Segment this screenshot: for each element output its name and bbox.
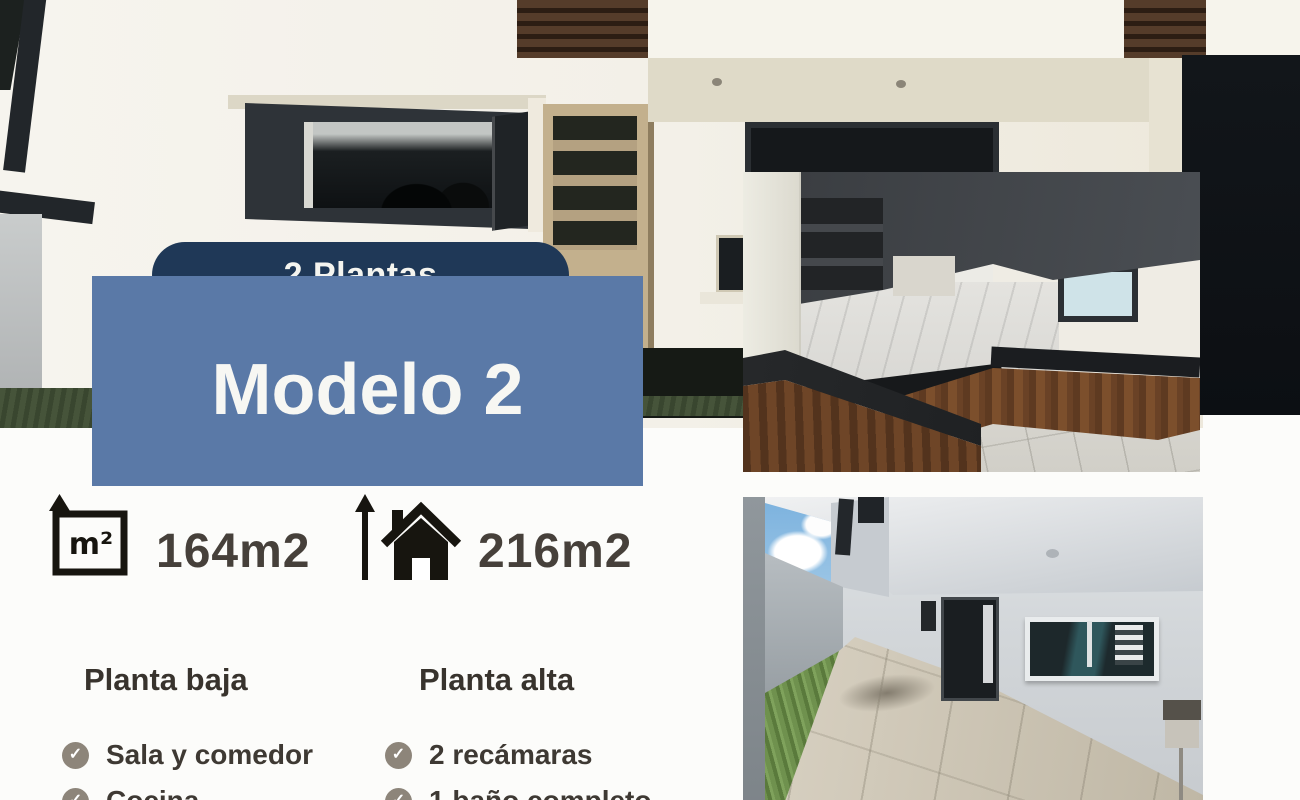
patio-near-wall xyxy=(743,497,765,800)
ceiling-light xyxy=(712,78,722,86)
kitchen-hood-gap xyxy=(893,256,955,296)
patio-door-interior xyxy=(983,605,993,683)
kitchen-open-shelves xyxy=(801,198,883,290)
wood-slat-canopy-right xyxy=(1124,0,1206,58)
check-icon: ✓ xyxy=(62,788,89,800)
built-area-value: 216m2 xyxy=(478,524,632,579)
check-icon: ✓ xyxy=(385,742,412,769)
list-item-upper-1: ✓ 2 recámaras xyxy=(385,739,592,771)
window-sill xyxy=(700,292,746,304)
model-title: Modelo 2 xyxy=(211,349,523,431)
upper-floor-window xyxy=(858,497,884,523)
ceiling-light xyxy=(896,80,906,88)
patio-window-divider xyxy=(1087,621,1092,667)
check-icon: ✓ xyxy=(62,742,89,769)
washbasin-top xyxy=(1163,700,1201,720)
patio-photo xyxy=(743,497,1203,800)
svg-text:m²: m² xyxy=(69,527,113,562)
grass-strip xyxy=(643,396,744,416)
model-title-panel: Modelo 2 xyxy=(92,276,643,486)
porch-soffit xyxy=(648,58,1188,122)
house-up-arrow-icon xyxy=(348,492,474,586)
check-icon: ✓ xyxy=(385,788,412,800)
flyer-canvas: 2 Plantas Modelo 2 m² 164m2 216m2 Planta… xyxy=(0,0,1300,800)
patio-window-blinds xyxy=(1115,625,1143,665)
washbasin-leg xyxy=(1179,748,1183,800)
center-window-jamb xyxy=(304,122,313,208)
list-item-ground-2: ✓ Cocina xyxy=(62,785,199,800)
list-item-label: 2 recámaras xyxy=(429,739,592,771)
patio-ceiling-light xyxy=(1046,549,1059,558)
list-item-label: 1 baño completo xyxy=(429,785,651,800)
upper-floor-header: Planta alta xyxy=(419,662,574,698)
list-item-label: Cocina xyxy=(106,785,199,800)
entry-door-glass-slats xyxy=(553,116,637,250)
photo-edge-trim xyxy=(1203,415,1300,429)
ground-floor-header: Planta baja xyxy=(84,662,248,698)
land-area-value: 164m2 xyxy=(156,524,310,579)
center-window-casement xyxy=(492,111,531,230)
list-item-ground-1: ✓ Sala y comedor xyxy=(62,739,313,771)
wood-slat-canopy xyxy=(517,0,650,58)
center-window-glass xyxy=(304,122,498,208)
patio-small-window xyxy=(921,601,936,631)
square-meters-icon: m² xyxy=(44,494,136,582)
right-column xyxy=(1149,58,1182,180)
list-item-upper-2: ✓ 1 baño completo xyxy=(385,785,651,800)
shaded-wall xyxy=(0,214,42,398)
washbasin-body xyxy=(1165,720,1199,748)
kitchen-photo xyxy=(743,172,1200,472)
list-item-label: Sala y comedor xyxy=(106,739,313,771)
